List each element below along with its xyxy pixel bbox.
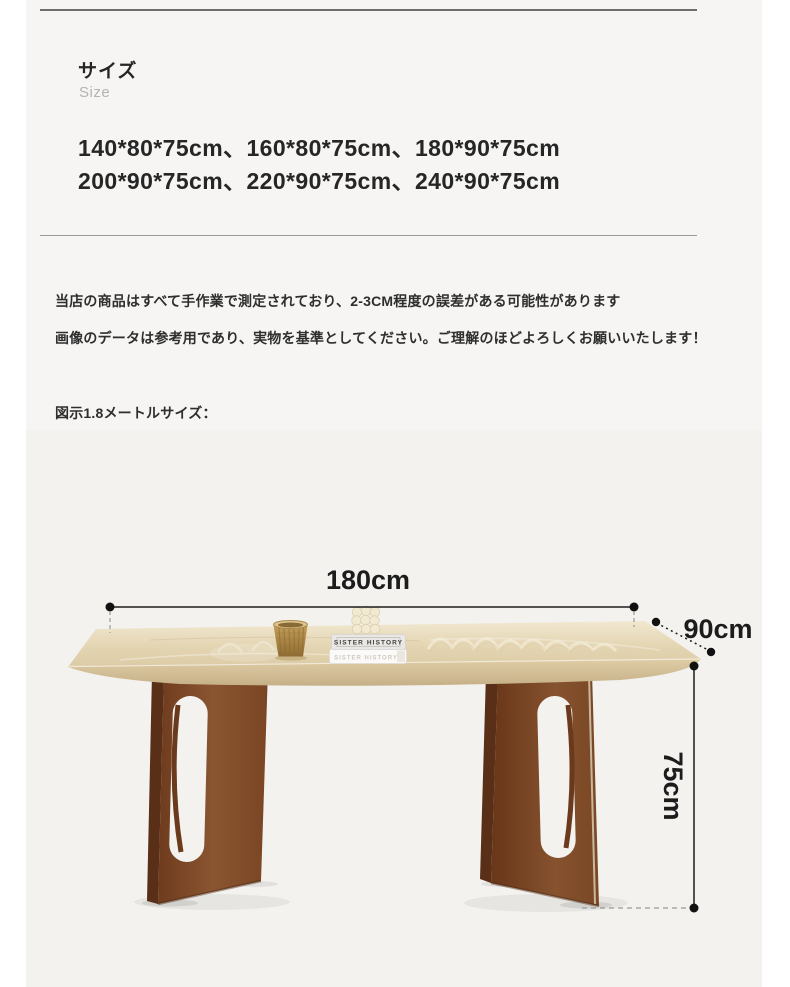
right-gutter bbox=[762, 0, 790, 987]
size-title: サイズ bbox=[78, 56, 137, 83]
left-gutter bbox=[0, 0, 26, 987]
dimension-dot bbox=[630, 603, 639, 612]
note-line-1: 当店の商品はすべて手作業で測定されており、2-3CM程度の誤差がある可能性があり… bbox=[55, 291, 620, 311]
basket-cup bbox=[274, 621, 308, 661]
table-right-leg bbox=[480, 672, 599, 906]
size-list: 140*80*75cm、160*80*75cm、180*90*75cm 200*… bbox=[78, 132, 560, 198]
height-label: 75cm bbox=[658, 751, 688, 820]
product-size-section: サイズ Size 140*80*75cm、160*80*75cm、180*90*… bbox=[0, 0, 790, 987]
dimension-dot bbox=[690, 904, 699, 913]
width-label: 180cm bbox=[326, 565, 410, 595]
book-spine-faint-text: SISTER HISTORY bbox=[334, 656, 398, 662]
top-rule bbox=[40, 9, 697, 11]
size-subtitle: Size bbox=[79, 84, 110, 101]
depth-label: 90cm bbox=[683, 614, 752, 644]
book-spine-text: SISTER HISTORY bbox=[334, 640, 403, 647]
dimension-dot bbox=[106, 603, 115, 612]
section-divider bbox=[40, 235, 697, 236]
size-line-2: 200*90*75cm、220*90*75cm、240*90*75cm bbox=[78, 165, 560, 198]
bubble-candle bbox=[352, 606, 380, 634]
figure-caption: 図示1.8メートルサイズ： bbox=[55, 403, 217, 423]
size-line-1: 140*80*75cm、160*80*75cm、180*90*75cm bbox=[78, 132, 560, 165]
dimension-dot bbox=[652, 618, 660, 626]
dimension-dot bbox=[690, 662, 699, 671]
table-left-leg bbox=[147, 670, 268, 904]
dimension-dot bbox=[707, 648, 715, 656]
book-stack: SISTER HISTORY SISTER HISTORY bbox=[330, 635, 407, 664]
product-diagram: SISTER HISTORY SISTER HISTORY 180cm 90cm bbox=[26, 430, 762, 987]
note-line-2: 画像のデータは参考用であり、実物を基準としてください。ご理解のほどよろしくお願い… bbox=[55, 328, 707, 348]
